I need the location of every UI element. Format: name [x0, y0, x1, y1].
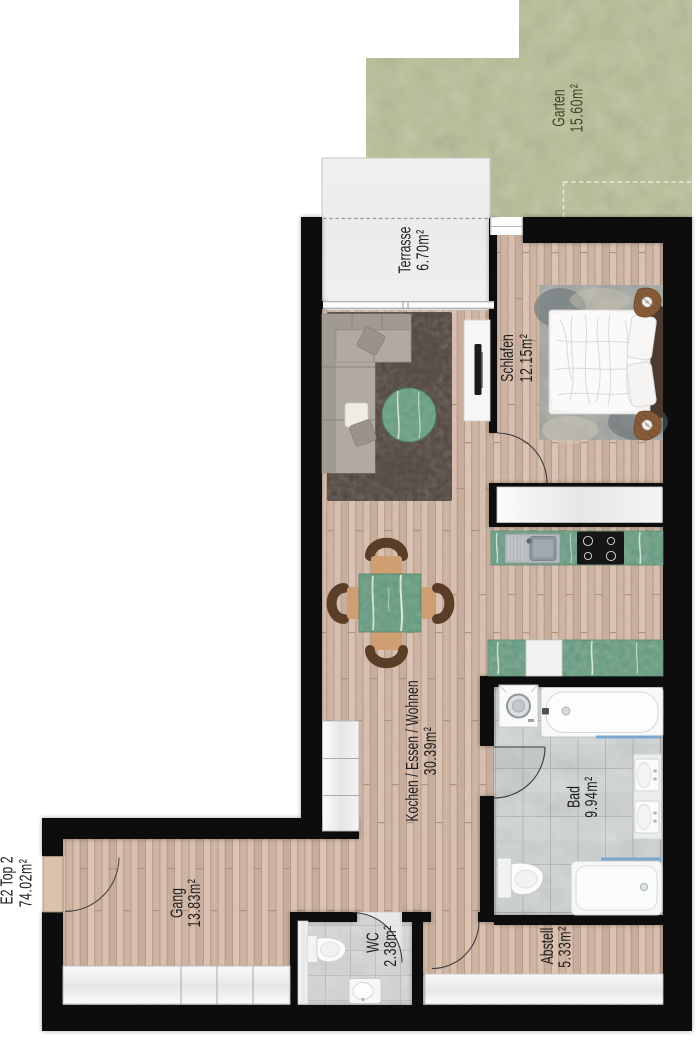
- svg-text:15.60m²: 15.60m²: [567, 84, 587, 133]
- svg-text:30.39m²: 30.39m²: [421, 727, 441, 776]
- svg-text:Garten: Garten: [549, 89, 569, 126]
- svg-text:Schlafen: Schlafen: [498, 334, 518, 382]
- svg-text:74.02m²: 74.02m²: [16, 859, 36, 908]
- svg-text:Kochen / Essen / Wohnen: Kochen / Essen / Wohnen: [403, 680, 423, 821]
- svg-text:12.15m²: 12.15m²: [517, 334, 537, 383]
- svg-text:6.70m²: 6.70m²: [413, 229, 433, 270]
- svg-text:Terrasse: Terrasse: [395, 227, 415, 274]
- svg-text:9.94m²: 9.94m²: [582, 776, 602, 817]
- svg-text:2.38m²: 2.38m²: [381, 925, 401, 966]
- svg-text:13.83m²: 13.83m²: [185, 879, 205, 928]
- svg-text:5.33m²: 5.33m²: [555, 926, 575, 967]
- svg-text:E2 Top 2: E2 Top 2: [0, 856, 17, 904]
